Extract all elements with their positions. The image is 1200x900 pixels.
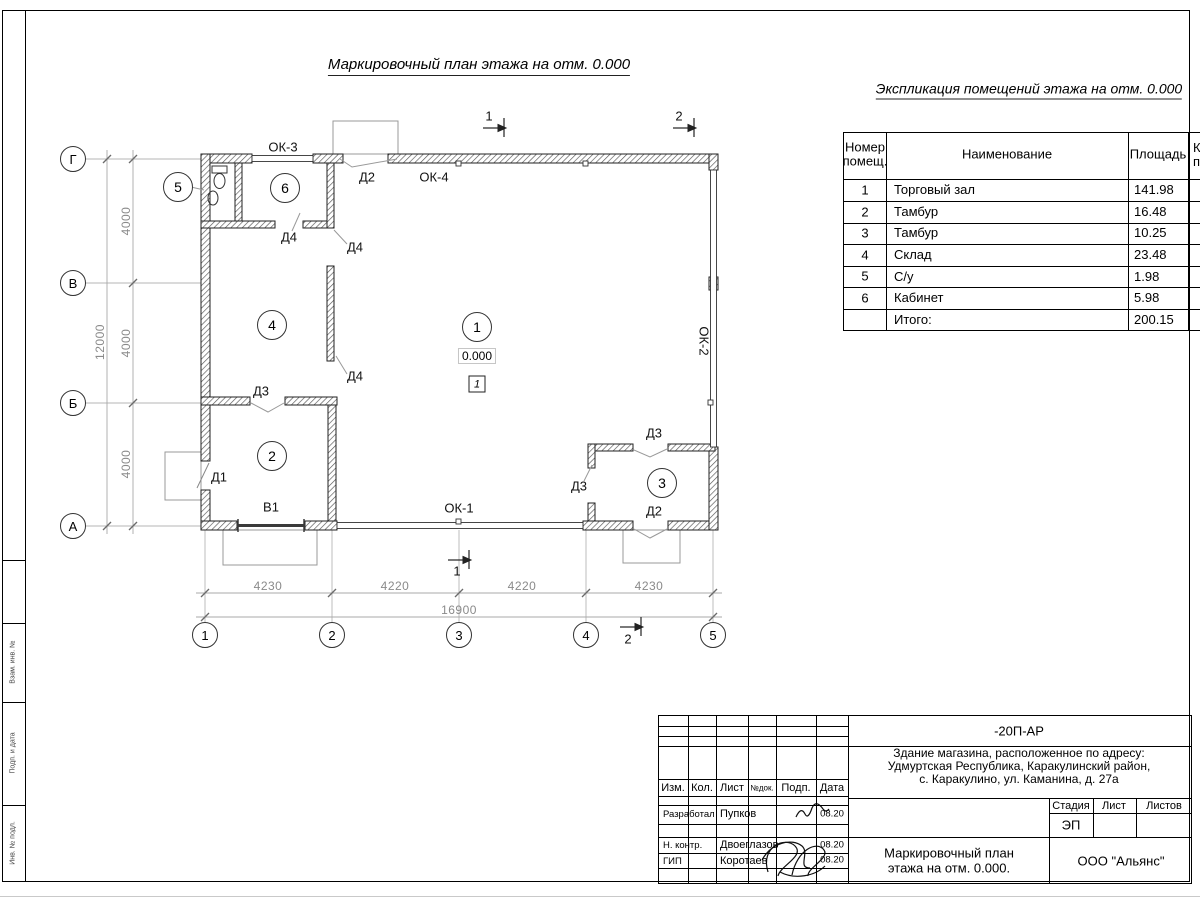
- col-data: Дата: [820, 782, 844, 794]
- stage-header: Стадия: [1052, 800, 1090, 812]
- door-label-d2-bottom: Д2: [646, 504, 662, 519]
- drawing-sheet: Взам. инв. № Подп. и дата Инв. № подл.: [0, 0, 1200, 900]
- section-mark-2-bottom: 2: [624, 632, 631, 647]
- person-name: Двоеглазов: [720, 839, 778, 851]
- plan-title: Маркировочный план этажа на отм. 0.000: [328, 56, 630, 76]
- room-number-4: 4: [257, 310, 287, 340]
- document-code: -20П-АР: [994, 724, 1044, 739]
- axis-bubble-5: 5: [700, 622, 726, 648]
- person-role: Разработал: [663, 809, 715, 820]
- col-header-cat: Кат.: [1193, 140, 1200, 155]
- door-leaf-d1: [197, 463, 209, 488]
- axis-bubble-2: 2: [319, 622, 345, 648]
- walls: [201, 154, 718, 530]
- dimension-ticks: [103, 155, 717, 621]
- col-header-num: Номер: [845, 140, 885, 155]
- axis-bubble-g: Г: [60, 146, 86, 172]
- windows: [252, 156, 717, 529]
- title-block: -20П-АР Здание магазина, расположенное п…: [658, 715, 1192, 884]
- axis-lines: [85, 159, 713, 623]
- dim-left-2: 4000: [119, 329, 133, 358]
- dimension-lines: [107, 150, 722, 617]
- axis-bubble-b: Б: [60, 390, 86, 416]
- room-number-6: 6: [270, 173, 300, 203]
- axis-bubble-3: 3: [446, 622, 472, 648]
- col-kol: Кол.: [691, 782, 713, 794]
- leader-lines: [191, 159, 667, 538]
- door-label-d3-room2: Д3: [253, 384, 269, 399]
- door-label-d4-b: Д4: [347, 240, 363, 255]
- person-name: Коротаев: [720, 855, 768, 867]
- dim-left-3: 4000: [119, 450, 133, 479]
- room-number-2: 2: [257, 441, 287, 471]
- door-label-d3-left: Д3: [571, 479, 587, 494]
- window-label-ok4: ОК-4: [419, 170, 448, 185]
- col-ndoc: №док.: [750, 784, 773, 793]
- person-date: 08.20: [820, 855, 844, 866]
- axis-bubble-v: В: [60, 270, 86, 296]
- section-mark-1-bottom: 1: [453, 564, 460, 579]
- section-mark-1-top: 1: [485, 109, 492, 124]
- doc-title-line2: этажа на отм. 0.000.: [888, 861, 1010, 876]
- col-list: Лист: [720, 782, 744, 794]
- doc-title-line1: Маркировочный план: [884, 846, 1014, 861]
- person-name: Пупков: [720, 808, 756, 820]
- room-number-1: 1: [462, 312, 492, 342]
- col-header-name: Наименование: [962, 147, 1052, 162]
- wall-tick-squares: [456, 161, 713, 524]
- dim-bottom-2: 4220: [381, 579, 410, 593]
- dim-bottom-total: 16900: [441, 603, 477, 617]
- person-role: Н. контр.: [663, 840, 702, 851]
- window-label-ok2: ОК-2: [697, 326, 712, 355]
- explication-title: Экспликация помещений этажа на отм. 0.00…: [876, 81, 1182, 100]
- dim-bottom-3: 4220: [508, 579, 537, 593]
- stage-value: ЭП: [1062, 818, 1081, 833]
- organization-name: ООО "Альянс": [1078, 854, 1165, 869]
- room-number-5: 5: [163, 172, 193, 202]
- axis-bubble-4: 4: [573, 622, 599, 648]
- toilet-icon: [212, 166, 227, 189]
- project-address-line1: Здание магазина, расположенное по адресу…: [893, 746, 1144, 760]
- project-address-line2: Удмуртская Республика, Каракулинский рай…: [888, 759, 1151, 773]
- dim-bottom-4: 4230: [635, 579, 664, 593]
- dim-bottom-1: 4230: [254, 579, 283, 593]
- room-number-3: 3: [647, 468, 677, 498]
- window-label-ok1: ОК-1: [444, 501, 473, 516]
- door-label-d4-c: Д4: [347, 369, 363, 384]
- door-label-d4-a: Д4: [281, 230, 297, 245]
- sheet-header: Лист: [1102, 800, 1126, 812]
- person-date: 08.20: [820, 840, 844, 851]
- axis-bubble-1: 1: [192, 622, 218, 648]
- explication-table: Номер помещ. Наименование Площадь Кат. п…: [843, 132, 1200, 331]
- col-header-area: Площадь: [1130, 147, 1187, 162]
- section-mark-2-top: 2: [675, 109, 682, 124]
- col-izm: Изм.: [661, 782, 685, 794]
- door-label-d3-top: Д3: [646, 426, 662, 441]
- gate-label-v1: В1: [263, 500, 279, 515]
- dim-left-total: 12000: [93, 324, 107, 360]
- col-podp: Подп.: [781, 782, 810, 794]
- project-address-line3: с. Каракулино, ул. Каманина, д. 27а: [919, 772, 1118, 786]
- window-label-ok3: ОК-3: [268, 140, 297, 155]
- dim-left-1: 4000: [119, 207, 133, 236]
- axis-bubble-a: А: [60, 513, 86, 539]
- sheets-header: Листов: [1146, 800, 1182, 812]
- person-date: 08.20: [820, 809, 844, 820]
- person-role: ГИП: [663, 856, 682, 867]
- door-label-d2-top: Д2: [359, 170, 375, 185]
- door-label-d1: Д1: [211, 470, 227, 485]
- elevation-mark: 0.000: [458, 347, 496, 365]
- floor-type-mark: 1: [469, 376, 486, 393]
